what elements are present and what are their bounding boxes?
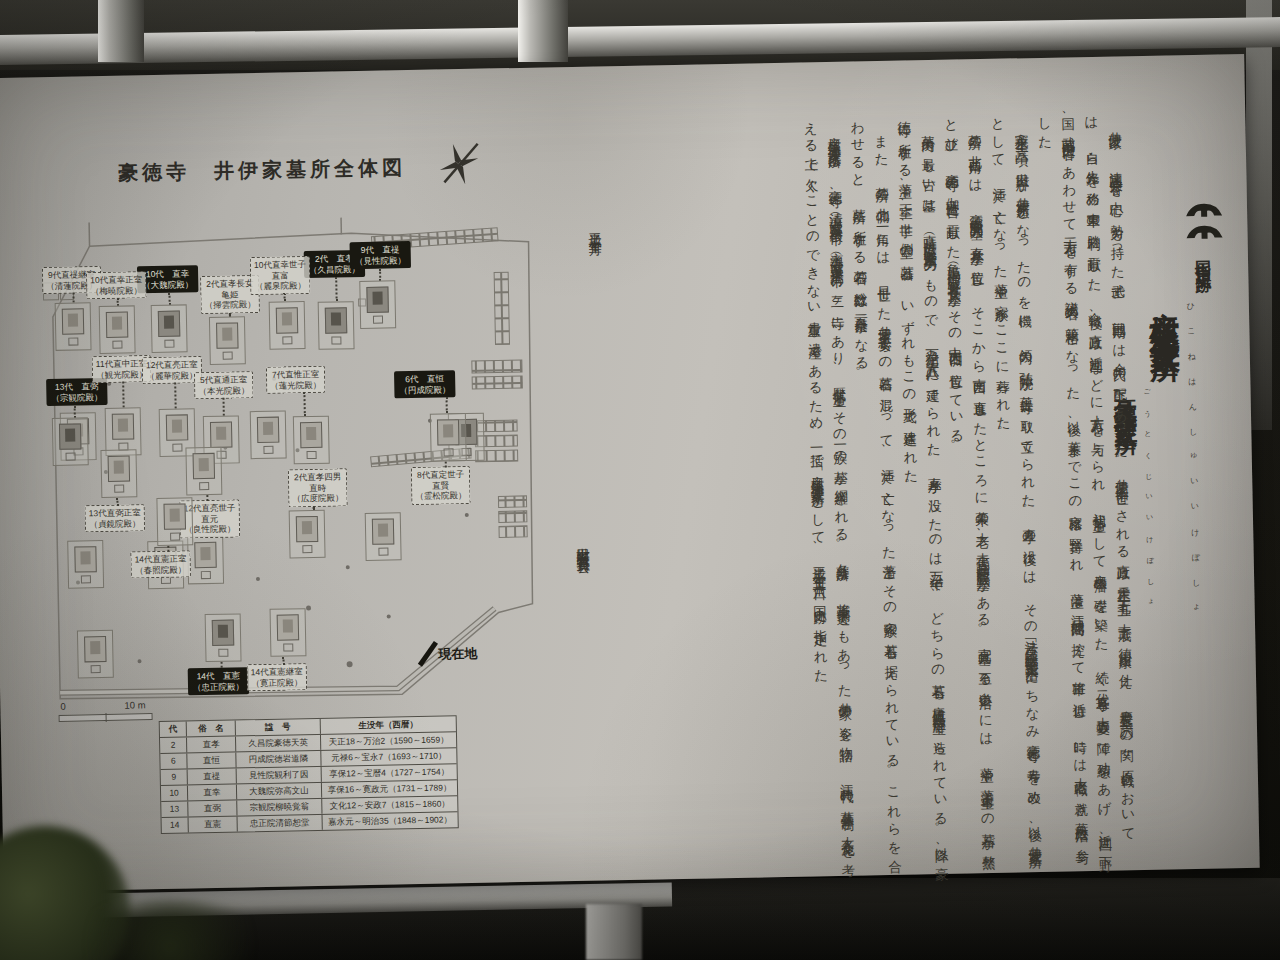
map-label-family: 10代直幸世子直富（麗泉院殿） bbox=[250, 256, 311, 295]
map-label-line: 8代直定世子 bbox=[415, 469, 466, 480]
map-label-family: 5代直通正室（本光院殿） bbox=[194, 371, 254, 399]
map-label-family: 7代直惟正室（蓮光院殿） bbox=[266, 366, 326, 394]
map-label-line: 14代直憲正室 bbox=[134, 553, 186, 564]
table-cell: 享保16～寛政元（1731～1789） bbox=[321, 780, 457, 798]
table-cell: 久昌院豪徳天英 bbox=[235, 735, 320, 752]
current-location-label: 現在地 bbox=[438, 646, 477, 662]
leader-line bbox=[117, 298, 119, 306]
frame-post-left bbox=[98, 0, 144, 62]
table-cell: 10 bbox=[161, 785, 187, 800]
scale-ten-label: 10 m bbox=[124, 699, 145, 710]
table-cell: 天正18～万治2（1590～1659） bbox=[320, 732, 456, 750]
frame-post-middle bbox=[518, 0, 568, 62]
table-cell: 文化12～安政7（1815～1860） bbox=[321, 796, 457, 814]
grave-plot-lord bbox=[51, 417, 88, 466]
map-label-line: 5代直通正室 bbox=[198, 374, 249, 385]
grave-plot bbox=[77, 630, 114, 679]
table-header-cell: 生没年（西暦） bbox=[320, 716, 456, 734]
table-header-cell: 諡 号 bbox=[235, 719, 320, 736]
table-cell: 享保12～宝暦4（1727～1754） bbox=[321, 764, 457, 782]
map-label-family: 10代直幸正室（梅暁院殿） bbox=[86, 271, 146, 299]
grave-plot bbox=[185, 447, 222, 496]
map-label-line: （蓮光院殿） bbox=[270, 379, 321, 390]
map-title: 豪徳寺 井伊家墓所全体図 bbox=[118, 154, 406, 187]
table-cell: 大魏院弥高文山 bbox=[236, 783, 321, 800]
map-label-line: 13代直弼正室 bbox=[89, 507, 141, 518]
grave-plot bbox=[67, 540, 104, 589]
scale-bar bbox=[59, 713, 153, 722]
designation-label: 国指定史跡 bbox=[1192, 247, 1213, 267]
table-cell: 円成院徳岩道隣 bbox=[235, 751, 320, 768]
grave-plot bbox=[288, 509, 325, 558]
table-cell: 直孝 bbox=[186, 737, 235, 753]
grave-plot bbox=[99, 305, 136, 354]
map-label-line: （霊松院殿） bbox=[415, 490, 466, 501]
map-label-lord: 6代 直恒（円成院殿） bbox=[394, 370, 456, 398]
leader-line bbox=[221, 662, 223, 668]
leader-line bbox=[444, 461, 446, 467]
ii-family-crest-icon bbox=[1184, 200, 1225, 243]
grave-plot-lord bbox=[150, 304, 187, 353]
leader-line bbox=[207, 495, 209, 501]
map-label-line: 7代直惟正室 bbox=[270, 369, 321, 380]
leader-line bbox=[445, 397, 447, 413]
current-location-marker: 現在地 bbox=[425, 639, 478, 668]
map-label-line: 10代 直幸 bbox=[142, 268, 193, 279]
table-cell: 14 bbox=[162, 817, 188, 832]
map-label-line: （麗泉院殿） bbox=[254, 280, 306, 291]
table-cell: 2 bbox=[160, 737, 186, 752]
map-label-line: （春照院殿） bbox=[135, 564, 187, 575]
grave-plot bbox=[156, 497, 193, 546]
table-cell: 元禄6～宝永7（1693～1710） bbox=[320, 748, 456, 766]
grave-plot bbox=[429, 413, 466, 462]
map-label-line: 6代 直恒 bbox=[399, 373, 450, 384]
grave-plot bbox=[54, 302, 91, 351]
map-label-line: （掃雲院殿） bbox=[205, 299, 256, 310]
leader-line bbox=[72, 293, 74, 303]
sign-author: 世田谷区教育委員会 bbox=[573, 537, 591, 551]
grave-plot bbox=[208, 316, 245, 365]
map-label-line: （円成院殿） bbox=[399, 384, 450, 395]
map-label-line: （大魏院殿） bbox=[142, 279, 193, 290]
map-label-family: 2代直孝四男直時（広度院殿） bbox=[288, 468, 348, 507]
table-header-cell: 代 bbox=[160, 721, 186, 736]
frame-post-bottom bbox=[586, 904, 642, 960]
scale-zero-label: 0 bbox=[60, 701, 66, 712]
leader-line bbox=[222, 398, 224, 416]
grave-plot bbox=[269, 301, 306, 350]
photo-of-sign: { "sign": { "designation": "国指定史跡", "tit… bbox=[0, 0, 1280, 960]
map-label-line: （見性院殿） bbox=[355, 255, 406, 266]
grave-plot bbox=[270, 608, 307, 657]
map-label-family: 12代直亮正室（麗華院殿） bbox=[142, 356, 202, 384]
table-cell: 嘉永元～明治35（1848～1902） bbox=[322, 812, 458, 830]
map-label-family: 14代直憲正室（春照院殿） bbox=[130, 550, 190, 578]
table-header-cell: 俗 名 bbox=[186, 721, 235, 737]
compass-icon bbox=[437, 141, 482, 188]
table-cell: 直幸 bbox=[187, 785, 236, 801]
leader-line bbox=[283, 293, 285, 301]
map-label-line: （観光院殿） bbox=[96, 369, 148, 380]
grave-plot bbox=[100, 449, 137, 498]
map-label-lord: 9代 直禔（見性院殿） bbox=[350, 241, 412, 269]
map-label-line: 9代 直禔 bbox=[355, 244, 406, 255]
map-label-family: 13代直弼正室（貞鏡院殿） bbox=[85, 504, 145, 532]
table-cell: 直弼 bbox=[187, 801, 236, 817]
map-label-line: 11代直中正室 bbox=[96, 358, 148, 369]
lords-table: 代俗 名諡 号生没年（西暦）2直孝久昌院豪徳天英天正18～万治2（1590～16… bbox=[159, 715, 459, 834]
table-cell: 直禔 bbox=[187, 769, 236, 785]
map-label-line: （梅暁院殿） bbox=[90, 285, 142, 296]
leader-line bbox=[335, 277, 337, 301]
map-label-line: （寛正院殿） bbox=[251, 677, 303, 688]
table-cell: 6 bbox=[160, 753, 186, 768]
table-cell: 見性院観利了因 bbox=[236, 767, 321, 784]
map-label-line: 14代 直憲 bbox=[193, 670, 244, 681]
map-label-line: （広度院殿） bbox=[292, 492, 343, 503]
map-label-line: 14代直憲継室 bbox=[251, 666, 303, 677]
map-label-line: 2代直孝長女 bbox=[204, 278, 255, 289]
leader-line bbox=[117, 498, 119, 506]
map-label-line: 2代直孝四男 bbox=[292, 471, 343, 482]
map-label-family: 14代直憲継室（寛正院殿） bbox=[247, 663, 307, 691]
map-label-line: （麗華院殿） bbox=[146, 370, 198, 381]
sign-board: 国指定史跡 ひこねはんしゅいいけぼしょ 彦根藩主井伊家墓所 ごうとくじいいけぼし… bbox=[0, 54, 1260, 892]
leader-line bbox=[168, 293, 170, 305]
grave-plot bbox=[250, 410, 287, 459]
map-label-line: 10代直幸世子 bbox=[254, 259, 306, 270]
table-cell: 宗観院柳暁覚翁 bbox=[236, 799, 321, 816]
leader-line bbox=[303, 392, 305, 416]
grave-plot bbox=[365, 512, 402, 561]
map-label-line: （貞鏡院殿） bbox=[89, 518, 141, 529]
map-label-line: 10代直幸正室 bbox=[90, 274, 142, 285]
leader-line bbox=[73, 406, 75, 418]
body-text: 井伊家は、遠江国井伊谷を中心に勢力を持った武士で、戦国期には今川氏の配下にあった… bbox=[634, 106, 1140, 863]
map-label-family: 8代直定世子直賢（霊松院殿） bbox=[411, 466, 471, 505]
grave-plot-lord bbox=[317, 301, 354, 350]
grave-plot-lord bbox=[359, 280, 396, 329]
grave-plot bbox=[292, 416, 329, 465]
map-label-line: （本光院殿） bbox=[198, 385, 249, 396]
body-paragraph: 井伊家は、遠江国井伊谷を中心に勢力を持った武士で、戦国期には今川氏の配下にあった… bbox=[1032, 106, 1140, 856]
map-label-line: （宗観院殿） bbox=[51, 391, 102, 402]
table-cell: 9 bbox=[161, 769, 187, 784]
leader-line bbox=[282, 657, 284, 665]
table-cell: 忠正院清節恕堂 bbox=[237, 815, 322, 832]
table-cell: 13 bbox=[161, 801, 187, 816]
sign-date: 平成二十年三月 bbox=[585, 222, 603, 236]
leader-line bbox=[168, 546, 170, 552]
map-label-line: （忠正院殿） bbox=[193, 681, 244, 692]
map-scale-bar: 0 10 m bbox=[58, 699, 158, 727]
leader-line bbox=[379, 269, 381, 281]
grave-plot-lord bbox=[204, 613, 241, 662]
table-cell: 直憲 bbox=[188, 817, 237, 833]
map-label-lord: 14代 直憲（忠正院殿） bbox=[188, 667, 250, 695]
table-cell: 直恒 bbox=[186, 753, 235, 769]
map-label-line: 12代直亮正室 bbox=[146, 359, 198, 370]
